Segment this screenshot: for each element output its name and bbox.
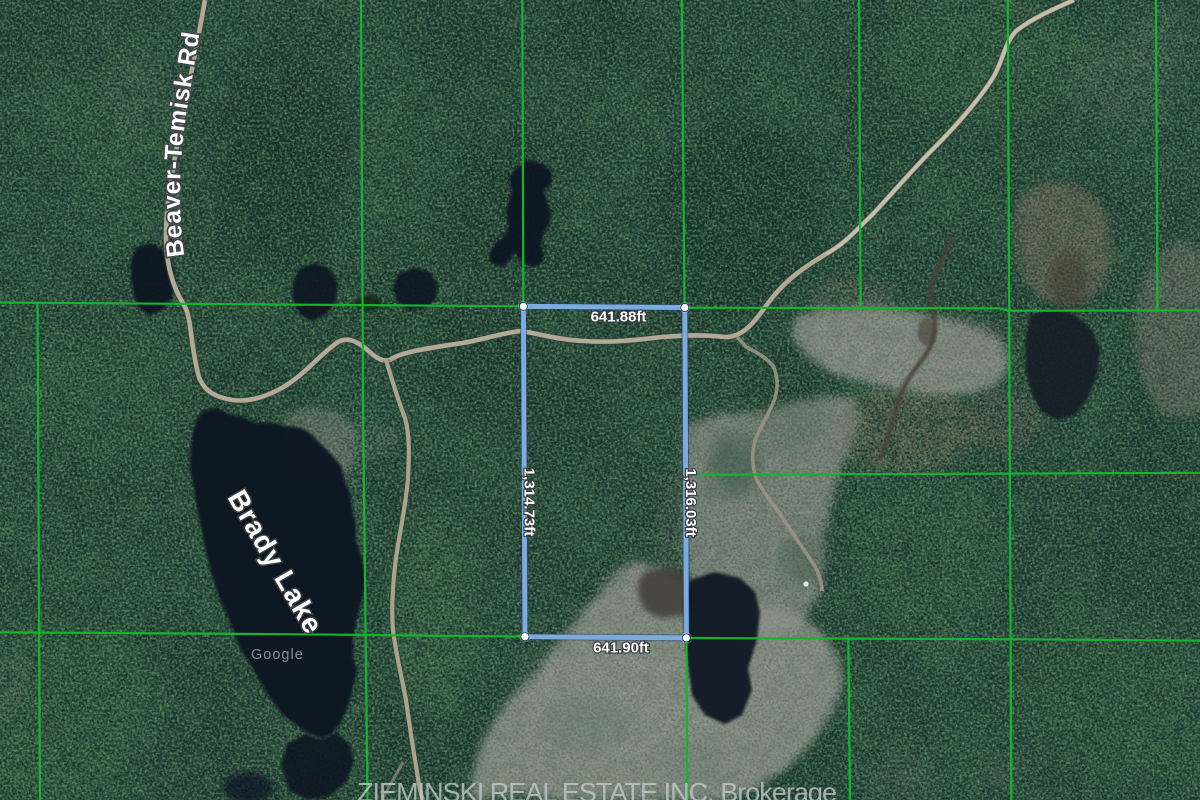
svg-text:641.90ft: 641.90ft bbox=[593, 640, 649, 657]
svg-text:Google: Google bbox=[251, 647, 304, 663]
svg-text:ZIEMINSKI REAL ESTATE INC. Bro: ZIEMINSKI REAL ESTATE INC. Brokerage bbox=[357, 778, 837, 800]
svg-text:641.88ft: 641.88ft bbox=[591, 309, 647, 326]
svg-text:1,316.03ft: 1,316.03ft bbox=[682, 468, 699, 536]
svg-text:1,314.73ft: 1,314.73ft bbox=[521, 468, 538, 536]
